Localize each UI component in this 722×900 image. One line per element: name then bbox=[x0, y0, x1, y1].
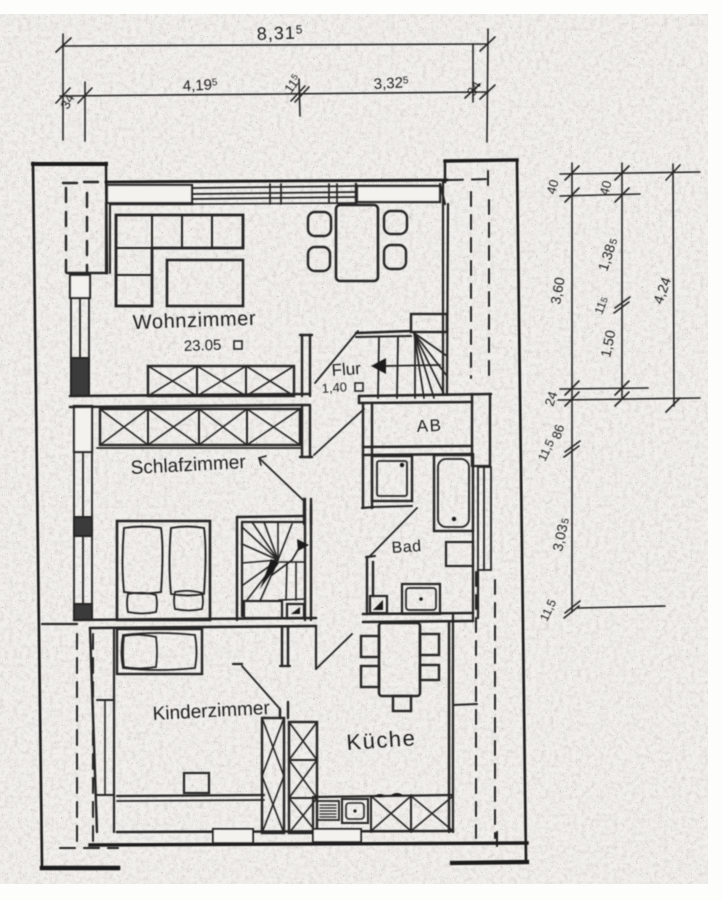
svg-text:AB: AB bbox=[416, 416, 443, 436]
svg-text:Wohnzimmer: Wohnzimmer bbox=[132, 308, 256, 334]
svg-text:23.05: 23.05 bbox=[184, 337, 222, 355]
svg-text:1,40: 1,40 bbox=[321, 379, 347, 396]
svg-text:Küche: Küche bbox=[346, 725, 417, 755]
svg-text:Flur: Flur bbox=[331, 359, 362, 380]
svg-text:Bad: Bad bbox=[391, 538, 422, 557]
